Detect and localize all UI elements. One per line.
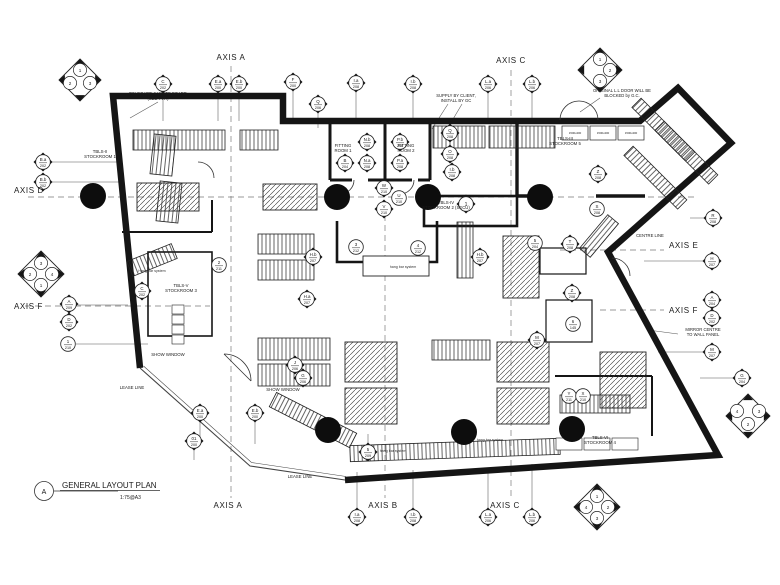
svg-text:206: 206 bbox=[529, 86, 535, 90]
room-label-fitting1: FITTINGROOM 1 bbox=[335, 143, 353, 153]
svg-text:I.a: I.a bbox=[355, 512, 360, 517]
drawing-sheet: 1500x400 1500x400 1500x400 A GENERAL LAY… bbox=[0, 0, 780, 585]
svg-text:U: U bbox=[397, 193, 400, 198]
svg-text:E.a: E.a bbox=[197, 408, 204, 413]
svg-text:Z: Z bbox=[571, 288, 574, 293]
plan-scale: 1:75@A3 bbox=[120, 495, 141, 501]
marker-ba202: B.a202 bbox=[34, 153, 53, 172]
marker-ib208t: I.b208 bbox=[404, 75, 423, 94]
marker-o1200: 01200 bbox=[185, 432, 204, 451]
svg-text:208: 208 bbox=[364, 144, 370, 148]
annotation-hang4: hang bar system bbox=[477, 438, 504, 442]
annotation-hang3: hang bar system bbox=[380, 449, 407, 453]
svg-text:204: 204 bbox=[342, 165, 348, 169]
svg-text:206: 206 bbox=[485, 519, 491, 523]
svg-text:145: 145 bbox=[570, 326, 576, 330]
marker-five204: 5204 bbox=[528, 236, 543, 251]
plan-title: GENERAL LAYOUT PLAN bbox=[62, 481, 157, 490]
svg-text:208: 208 bbox=[569, 295, 575, 299]
column bbox=[315, 417, 341, 443]
shelf-label: 1500x400 bbox=[569, 131, 582, 135]
svg-text:L.b: L.b bbox=[529, 512, 536, 517]
annotation-origdoor: ORIGINAL L.L DOOR WILL BEBLOCKED by G.C. bbox=[593, 88, 651, 98]
detail-letter: A bbox=[42, 489, 47, 496]
marker-two211: 2211 bbox=[212, 258, 227, 273]
svg-text:H.b: H.b bbox=[477, 252, 484, 257]
svg-text:I.b: I.b bbox=[450, 167, 455, 172]
svg-text:206: 206 bbox=[300, 380, 306, 384]
svg-text:1: 1 bbox=[40, 283, 43, 288]
svg-text:208: 208 bbox=[353, 85, 359, 89]
svg-text:X: X bbox=[582, 391, 585, 396]
floor-plan-svg: 1500x400 1500x400 1500x400 A GENERAL LAY… bbox=[0, 0, 780, 585]
svg-text:1: 1 bbox=[596, 494, 599, 499]
svg-text:T: T bbox=[569, 239, 572, 244]
svg-text:L.a: L.a bbox=[485, 512, 492, 517]
marker-eb200t: E.b200 bbox=[230, 75, 249, 94]
svg-text:204: 204 bbox=[532, 245, 538, 249]
svg-text:208: 208 bbox=[397, 165, 403, 169]
svg-text:I.b: I.b bbox=[411, 79, 416, 84]
svg-text:208: 208 bbox=[595, 176, 601, 180]
column bbox=[559, 416, 585, 442]
svg-text:1: 1 bbox=[599, 57, 602, 62]
svg-text:208: 208 bbox=[710, 220, 716, 224]
marker-h207: H207 bbox=[703, 252, 722, 271]
annotation-hang1: Hang bar system bbox=[138, 269, 165, 273]
svg-text:207: 207 bbox=[304, 301, 310, 305]
title-block: A GENERAL LAYOUT PLAN 1:75@A3 bbox=[35, 481, 161, 501]
marker-cluster-br: 1423 bbox=[574, 484, 620, 530]
marker-ea200t: E.a200 bbox=[209, 75, 228, 94]
annotation-supply: SUPPLY BY CLIENT,INSTALL BY GC bbox=[436, 93, 476, 103]
marker-six145: 6145 bbox=[566, 317, 581, 332]
svg-text:200: 200 bbox=[197, 415, 203, 419]
marker-cluster-fr: 432 bbox=[726, 394, 770, 438]
annotation-hang2: hang bar system bbox=[390, 265, 417, 269]
svg-text:206: 206 bbox=[315, 106, 321, 110]
annotation-centreline: CENTRE LINE bbox=[636, 233, 664, 238]
annotation-mirror: MIRROR CENTRETO WALL PANEL bbox=[685, 327, 721, 337]
marker-f200: F200 bbox=[284, 73, 303, 92]
axis-label-axis-b-bottom: AXIS B bbox=[368, 501, 397, 510]
svg-text:200: 200 bbox=[215, 86, 221, 90]
marker-cluster-left: 3241 bbox=[18, 251, 64, 297]
svg-text:207: 207 bbox=[310, 259, 316, 263]
svg-text:A: A bbox=[711, 295, 714, 300]
svg-text:208: 208 bbox=[567, 246, 573, 250]
svg-text:D: D bbox=[710, 313, 713, 318]
svg-text:208: 208 bbox=[410, 86, 416, 90]
svg-text:J: J bbox=[294, 360, 296, 365]
svg-text:211: 211 bbox=[216, 267, 222, 271]
axis-label-axis-f-right: AXIS F bbox=[669, 306, 698, 315]
svg-text:L.b: L.b bbox=[529, 79, 536, 84]
svg-text:E.b: E.b bbox=[252, 408, 259, 413]
marker-d202l: D202 bbox=[60, 313, 79, 332]
axis-label-axis-f-left: AXIS F bbox=[14, 302, 43, 311]
svg-text:S: S bbox=[596, 204, 599, 209]
svg-text:Y: Y bbox=[568, 391, 571, 396]
svg-text:202: 202 bbox=[160, 86, 166, 90]
svg-text:206: 206 bbox=[485, 86, 491, 90]
svg-text:204: 204 bbox=[709, 302, 715, 306]
svg-text:C: C bbox=[140, 286, 143, 291]
svg-text:N.b: N.b bbox=[364, 137, 371, 142]
svg-text:V: V bbox=[383, 204, 386, 209]
svg-text:208: 208 bbox=[449, 174, 455, 178]
stockroom5-shelves: 1500x400 1500x400 1500x400 bbox=[562, 126, 644, 140]
svg-text:204: 204 bbox=[739, 380, 745, 384]
marker-ia208b: I.a208 bbox=[348, 508, 367, 527]
svg-text:F: F bbox=[292, 77, 295, 82]
svg-text:209: 209 bbox=[66, 306, 72, 310]
svg-text:01: 01 bbox=[192, 436, 197, 441]
svg-text:Q: Q bbox=[316, 99, 320, 104]
marker-la206t: L.a206 bbox=[479, 75, 498, 94]
svg-text:3: 3 bbox=[89, 81, 92, 86]
column bbox=[451, 419, 477, 445]
svg-text:208: 208 bbox=[447, 156, 453, 160]
svg-text:2: 2 bbox=[29, 272, 32, 277]
shelf-label: 1500x400 bbox=[597, 131, 610, 135]
svg-text:4: 4 bbox=[51, 272, 54, 277]
marker-one210: 1210 bbox=[61, 337, 76, 352]
axis-label-axis-a-bottom: AXIS A bbox=[214, 501, 243, 510]
svg-text:210: 210 bbox=[381, 190, 387, 194]
room-label-sr1: TBLS-IISTOCKROOM 1 bbox=[84, 149, 116, 159]
marker-s208: S208 bbox=[590, 202, 605, 217]
svg-text:208: 208 bbox=[354, 519, 360, 523]
column bbox=[527, 184, 553, 210]
marker-a209: A209 bbox=[60, 295, 79, 314]
marker-q206: Q206 bbox=[309, 95, 328, 114]
marker-m207r: M207 bbox=[703, 343, 722, 362]
axis-label-axis-e-right: AXIS E bbox=[669, 241, 698, 250]
marker-three212: 3212 bbox=[349, 240, 364, 255]
svg-text:206: 206 bbox=[292, 367, 298, 371]
svg-text:207: 207 bbox=[534, 342, 540, 346]
svg-text:200: 200 bbox=[236, 86, 242, 90]
svg-text:210: 210 bbox=[381, 211, 387, 215]
marker-d202r: D202 bbox=[703, 309, 722, 328]
marker-r208: R208 bbox=[704, 209, 723, 228]
svg-text:3: 3 bbox=[758, 409, 761, 414]
marker-y211: Y211 bbox=[562, 389, 577, 404]
svg-text:212: 212 bbox=[415, 250, 421, 254]
svg-text:G: G bbox=[301, 373, 305, 378]
room-label-lease1: LEASE LINE bbox=[120, 385, 145, 390]
svg-text:P.a: P.a bbox=[397, 158, 404, 163]
svg-text:200: 200 bbox=[252, 415, 258, 419]
svg-text:2: 2 bbox=[69, 81, 72, 86]
marker-cluster-tr: 123 bbox=[578, 48, 622, 92]
svg-text:Q: Q bbox=[448, 128, 452, 133]
axis-label-axis-c-top: AXIS C bbox=[496, 56, 526, 65]
svg-text:G: G bbox=[740, 373, 744, 378]
svg-text:4: 4 bbox=[736, 409, 739, 414]
svg-text:202: 202 bbox=[40, 164, 46, 168]
svg-text:I.a: I.a bbox=[354, 78, 359, 83]
marker-g204: G204 bbox=[733, 369, 752, 388]
room-label-show2: SHOW WINDOW bbox=[266, 387, 300, 392]
svg-text:210: 210 bbox=[65, 346, 71, 350]
svg-text:I.b: I.b bbox=[411, 512, 416, 517]
svg-text:1: 1 bbox=[79, 68, 82, 73]
svg-text:210: 210 bbox=[580, 398, 586, 402]
svg-text:E.b: E.b bbox=[236, 79, 243, 84]
svg-text:2: 2 bbox=[607, 505, 610, 510]
svg-text:H: H bbox=[710, 256, 713, 261]
svg-text:L.a: L.a bbox=[485, 79, 492, 84]
svg-text:N.a: N.a bbox=[364, 158, 371, 163]
marker-ib208b: I.b208 bbox=[404, 508, 423, 527]
marker-a204r: A204 bbox=[703, 291, 722, 310]
svg-text:R: R bbox=[711, 213, 714, 218]
svg-text:Z: Z bbox=[597, 169, 600, 174]
svg-text:3: 3 bbox=[40, 261, 43, 266]
room-label-show1: SHOW WINDOW bbox=[151, 352, 185, 357]
room-label-fitting2: FITTINGROOM 2 bbox=[398, 143, 416, 153]
svg-text:212: 212 bbox=[353, 249, 359, 253]
svg-text:M: M bbox=[535, 335, 539, 340]
svg-text:M: M bbox=[710, 347, 714, 352]
svg-text:208: 208 bbox=[410, 519, 416, 523]
marker-four212: 4212 bbox=[411, 241, 426, 256]
svg-text:207: 207 bbox=[709, 263, 715, 267]
marker-cluster-tl: 123 bbox=[59, 59, 101, 101]
svg-text:H.a: H.a bbox=[304, 294, 311, 299]
svg-text:B: B bbox=[344, 158, 347, 163]
stockroom5-door-arc bbox=[560, 101, 598, 120]
marker-lb206t: L.b206 bbox=[523, 75, 542, 94]
svg-text:210: 210 bbox=[396, 200, 402, 204]
svg-text:E.a: E.a bbox=[215, 79, 222, 84]
svg-text:206: 206 bbox=[529, 519, 535, 523]
marker-la206b: L.a206 bbox=[479, 508, 498, 527]
svg-text:208: 208 bbox=[364, 165, 370, 169]
axis-label-axis-c-bottom: AXIS C bbox=[490, 501, 520, 510]
svg-text:2: 2 bbox=[747, 422, 750, 427]
svg-text:209: 209 bbox=[365, 454, 371, 458]
svg-text:3: 3 bbox=[599, 79, 602, 84]
marker-ia208t: I.a208 bbox=[347, 74, 366, 93]
svg-text:202: 202 bbox=[709, 320, 715, 324]
svg-text:202: 202 bbox=[139, 293, 145, 297]
svg-text:207: 207 bbox=[709, 354, 715, 358]
svg-text:211: 211 bbox=[566, 398, 572, 402]
axis-label-axis-a-top: AXIS A bbox=[217, 53, 246, 62]
svg-text:H.b: H.b bbox=[310, 252, 317, 257]
svg-text:208: 208 bbox=[447, 135, 453, 139]
shelf-label: 1500x400 bbox=[625, 131, 638, 135]
svg-text:202: 202 bbox=[66, 324, 72, 328]
svg-text:C: C bbox=[161, 79, 164, 84]
room-label-lease2: LEASE LINE bbox=[288, 474, 313, 479]
svg-text:208: 208 bbox=[594, 211, 600, 215]
svg-text:2: 2 bbox=[609, 68, 612, 73]
svg-text:207: 207 bbox=[477, 259, 483, 263]
axis-label-axis-d-left: AXIS D bbox=[14, 186, 44, 195]
column bbox=[324, 184, 350, 210]
marker-lb206b: L.b206 bbox=[523, 508, 542, 527]
svg-text:A: A bbox=[68, 299, 71, 304]
svg-text:3: 3 bbox=[596, 516, 599, 521]
svg-text:B.a: B.a bbox=[40, 157, 47, 162]
svg-text:200: 200 bbox=[191, 443, 197, 447]
marker-u210: U210 bbox=[392, 191, 407, 206]
svg-text:B.b: B.b bbox=[40, 177, 47, 182]
svg-text:4: 4 bbox=[585, 505, 588, 510]
column bbox=[80, 183, 106, 209]
svg-text:P.b: P.b bbox=[397, 137, 404, 142]
svg-text:200: 200 bbox=[290, 84, 296, 88]
svg-text:O: O bbox=[448, 149, 452, 154]
svg-text:D: D bbox=[67, 317, 70, 322]
marker-x210: X210 bbox=[576, 389, 591, 404]
